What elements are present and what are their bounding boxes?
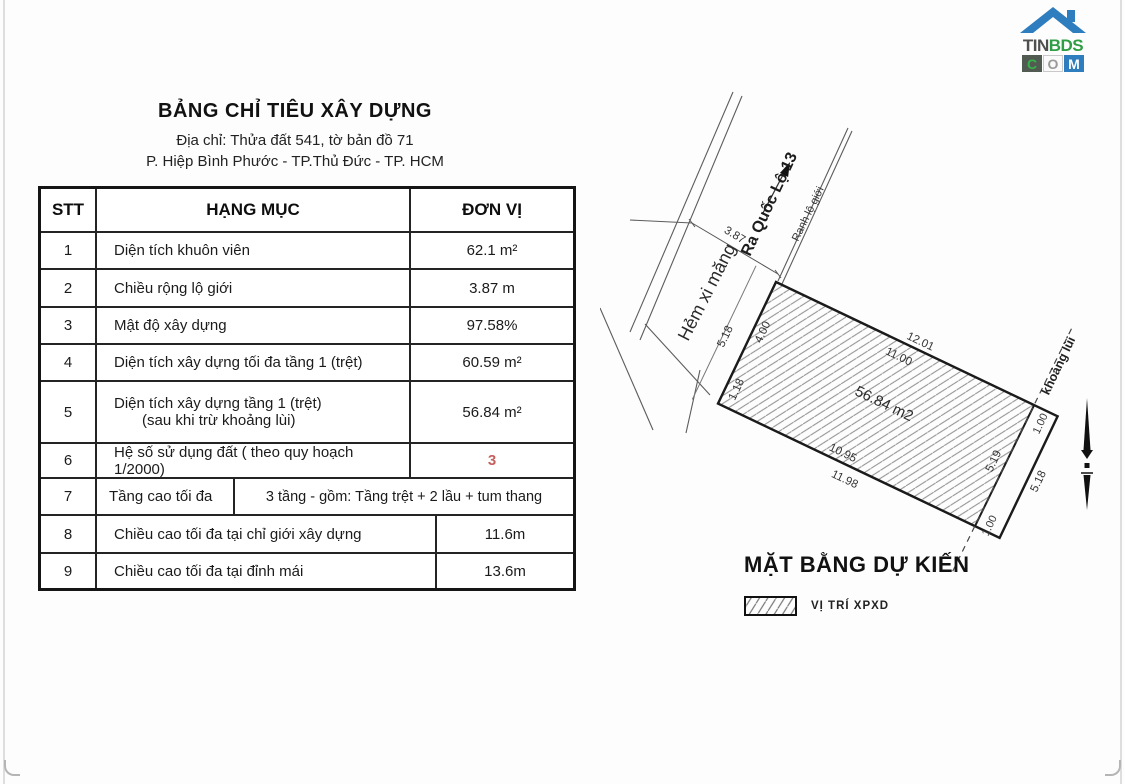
row-label: Hệ số sử dụng đất ( theo quy hoạch 1/200… <box>95 444 409 477</box>
row-value: 13.6m <box>435 554 573 588</box>
row-number: 4 <box>41 345 95 380</box>
row-label-line-1: Diện tích xây dựng tầng 1 (trệt) <box>114 395 322 412</box>
scanned-spec-sheet: TINBDS C O M BẢNG CHỈ TIÊU XÂY DỰNG Địa … <box>0 0 1125 784</box>
document-header: BẢNG CHỈ TIÊU XÂY DỰNG Địa chỉ: Thửa đất… <box>60 100 530 172</box>
address-line-1: Địa chỉ: Thửa đất 541, tờ bản đồ 71 <box>60 130 530 151</box>
dim-setback-bottom: 1.00 <box>980 514 1000 539</box>
page-left-edge <box>3 0 5 784</box>
address-line-2: P. Hiệp Bình Phước - TP.Thủ Đức - TP. HC… <box>60 151 530 172</box>
col-header-stt: STT <box>41 189 95 231</box>
row-value: 62.1 m² <box>409 233 573 268</box>
document-title: BẢNG CHỈ TIÊU XÂY DỰNG <box>60 100 530 123</box>
table-row: 4 Diện tích xây dựng tối đa tầng 1 (trệt… <box>41 343 573 380</box>
logo-com: C O M <box>1018 55 1088 72</box>
house-icon <box>1020 6 1086 34</box>
row-value: 56.84 m² <box>409 382 573 442</box>
row-value: 97.58% <box>409 308 573 343</box>
col-header-don-vi: ĐƠN VỊ <box>409 189 573 231</box>
table-row: 3 Mật độ xây dựng 97.58% <box>41 306 573 343</box>
direction-label: Ra Quốc Lộ 13 <box>738 150 801 259</box>
row-label: Chiều rộng lộ giới <box>95 270 409 306</box>
logo-tin: TIN <box>1023 36 1049 55</box>
setback-label: khoảng lùi <box>1039 335 1079 397</box>
row-label: Diện tích xây dựng tầng 1 (trệt) (sau kh… <box>95 382 409 442</box>
dim-bottom-outer: 11.98 <box>829 468 859 491</box>
row-label: Diện tích khuôn viên <box>95 233 409 268</box>
row-number: 1 <box>41 233 95 268</box>
dim-left-outer: 5.18 <box>715 324 735 349</box>
tinbds-logo: TINBDS C O M <box>1018 6 1088 72</box>
dim-setback-top: 1.00 <box>1031 412 1051 437</box>
row-value: 3 tầng - gồm: Tầng trệt + 2 lầu + tum th… <box>233 479 573 514</box>
col-header-hang-muc: HẠNG MỤC <box>95 189 409 231</box>
row-number: 7 <box>41 479 95 514</box>
logo-wordmark: TINBDS <box>1018 38 1088 54</box>
plan-legend: VỊ TRÍ XPXD <box>744 596 889 616</box>
table-row: 9 Chiều cao tối đa tại đỉnh mái 13.6m <box>41 552 573 588</box>
row-value: 11.6m <box>435 516 573 552</box>
legend-label: VỊ TRÍ XPXD <box>811 600 889 612</box>
site-plan-drawing: 3.87 Ra Quốc Lộ 13 Ranh lộ giới Hẻm xi m… <box>600 80 1125 740</box>
road-boundary-label: Ranh lộ giới <box>790 185 827 243</box>
row-value-highlighted: 3 <box>409 444 573 477</box>
row-label-line-2: (sau khi trừ khoảng lùi) <box>114 412 322 429</box>
row-label: Chiều cao tối đa tại chỉ giới xây dựng <box>95 516 435 552</box>
logo-bds: BDS <box>1049 36 1083 55</box>
row-label: Diện tích xây dựng tối đa tầng 1 (trệt) <box>95 345 409 380</box>
row-number: 5 <box>41 382 95 442</box>
scan-corner-artifact <box>4 760 20 776</box>
logo-letter-c: C <box>1022 55 1042 72</box>
row-number: 8 <box>41 516 95 552</box>
row-label: Mật độ xây dựng <box>95 308 409 343</box>
table-header-row: STT HẠNG MỤC ĐƠN VỊ <box>41 189 573 231</box>
table-row: 2 Chiều rộng lộ giới 3.87 m <box>41 268 573 306</box>
row-number: 2 <box>41 270 95 306</box>
table-row: 5 Diện tích xây dựng tầng 1 (trệt) (sau … <box>41 380 573 442</box>
row-value: 3.87 m <box>409 270 573 306</box>
legend-hatch-swatch <box>744 596 797 616</box>
row-number: 6 <box>41 444 95 477</box>
table-row: 6 Hệ số sử dụng đất ( theo quy hoạch 1/2… <box>41 442 573 477</box>
row-number: 3 <box>41 308 95 343</box>
row-label: Chiều cao tối đa tại đỉnh mái <box>95 554 435 588</box>
table-row: 8 Chiều cao tối đa tại chỉ giới xây dựng… <box>41 514 573 552</box>
row-value: 60.59 m² <box>409 345 573 380</box>
plan-title: MẶT BẰNG DỰ KIẾN <box>744 552 969 578</box>
logo-letter-m: M <box>1064 55 1084 72</box>
logo-letter-o: O <box>1043 55 1063 72</box>
table-row: 7 Tầng cao tối đa 3 tầng - gồm: Tầng trệ… <box>41 477 573 514</box>
address-lines: Địa chỉ: Thửa đất 541, tờ bản đồ 71 P. H… <box>60 130 530 172</box>
scan-corner-artifact <box>1105 760 1121 776</box>
north-arrow-icon <box>1081 398 1093 510</box>
row-number: 9 <box>41 554 95 588</box>
row-label: Tầng cao tối đa <box>95 479 233 514</box>
spec-table: STT HẠNG MỤC ĐƠN VỊ 1 Diện tích khuôn vi… <box>38 186 576 591</box>
table-row: 1 Diện tích khuôn viên 62.1 m² <box>41 231 573 268</box>
